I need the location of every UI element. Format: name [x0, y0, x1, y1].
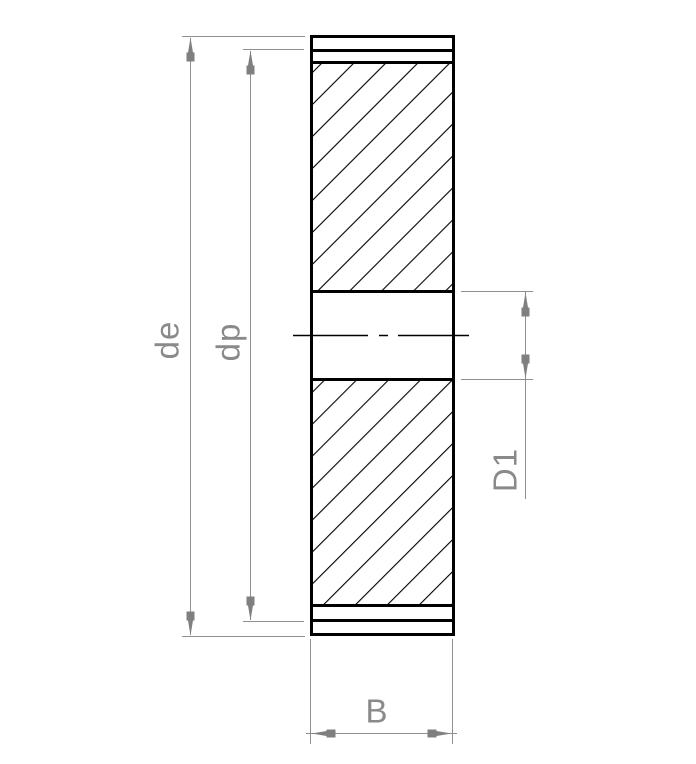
gear-section-figure	[0, 0, 696, 764]
lower-hatch-area	[313, 381, 452, 604]
b-arrow-left-icon	[312, 730, 336, 738]
de-arrow-down-icon	[187, 612, 195, 636]
de-dimension-label: de	[151, 321, 184, 360]
d1-dimension-label: D1	[489, 448, 522, 492]
d1-arrow-up-icon	[522, 293, 530, 317]
de-arrow-up-icon	[187, 38, 195, 62]
b-dimension-label: B	[365, 695, 388, 728]
upper-hatch-area	[313, 64, 452, 290]
dp-arrow-up-icon	[247, 51, 255, 75]
b-arrow-right-icon	[428, 730, 452, 738]
d1-arrow-down-icon	[522, 355, 530, 379]
drawing-canvas: de dp D1 B	[0, 0, 696, 764]
dp-dimension-label: dp	[212, 323, 245, 362]
dp-arrow-down-icon	[247, 597, 255, 621]
